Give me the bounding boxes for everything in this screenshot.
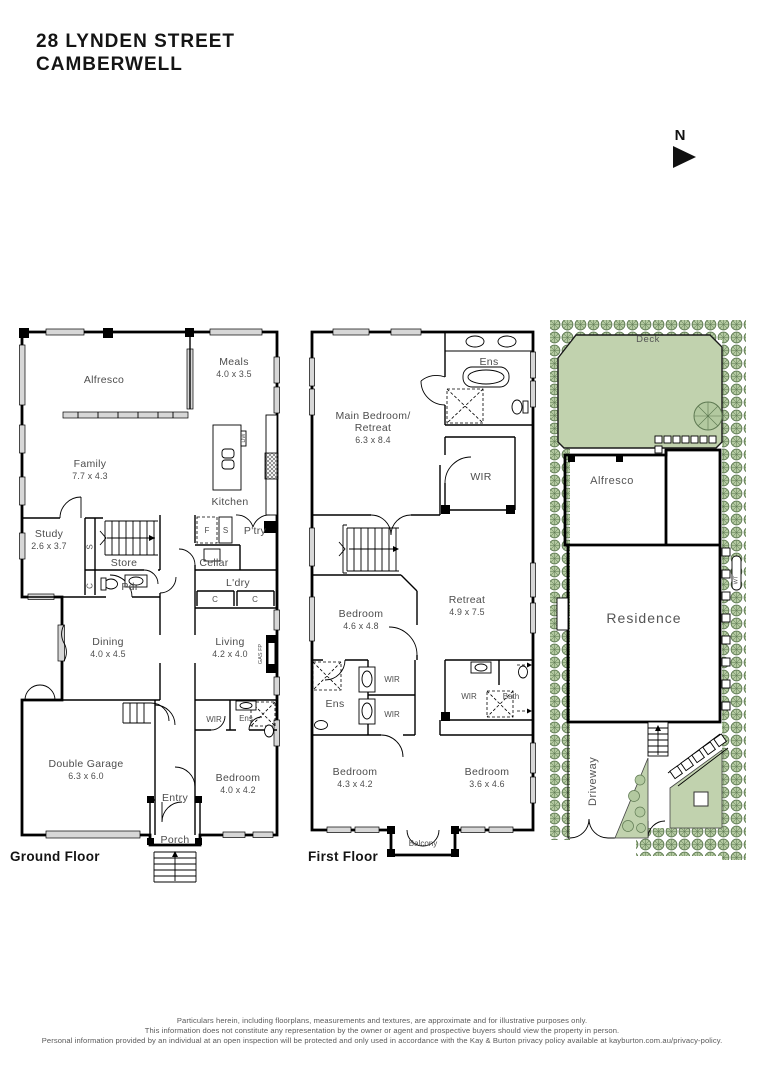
residence-label: Residence — [606, 610, 681, 626]
water-tank-label: WT — [734, 575, 740, 584]
main-bed-doors — [371, 515, 411, 535]
bedroom23-walls — [312, 720, 533, 735]
site-plan: Deck Alfresco Residence — [548, 318, 754, 870]
wir3-label: WIR — [461, 692, 477, 701]
powder-label: Pdr — [121, 581, 138, 593]
ground-stairs — [100, 521, 158, 555]
wir-label: WIR — [206, 715, 222, 724]
kitchen-label: Kitchen — [211, 496, 248, 508]
bedroom-label: Bedroom — [216, 772, 261, 784]
garage-label: Double Garage — [48, 758, 123, 770]
bedroom3-label: Bedroom — [465, 766, 510, 778]
feature-tree-icon — [694, 402, 722, 430]
study-label: Study — [35, 528, 64, 540]
porch-steps — [154, 851, 196, 882]
fridge-label: F — [205, 526, 210, 535]
site-alfresco-label: Alfresco — [590, 475, 634, 487]
ground-floor-title: Ground Floor — [10, 849, 100, 864]
north-arrow-icon — [673, 146, 696, 168]
driveway-label: Driveway — [587, 757, 599, 806]
cellar-label: Cellar — [199, 557, 228, 569]
retreat-dim: 4.9 x 7.5 — [449, 607, 485, 617]
alfresco-label: Alfresco — [84, 374, 124, 386]
disclaimer-line1: Particulars herein, including floorplans… — [0, 1016, 764, 1026]
wir-bath-block — [445, 660, 533, 720]
bedroom2-label: Bedroom — [333, 766, 378, 778]
property-title-line2: CAMBERWELL — [36, 53, 235, 76]
laundry-label: L'dry — [226, 577, 250, 589]
meals-label: Meals — [219, 356, 249, 368]
cooktop-icon — [265, 453, 278, 479]
ens-label: Ens — [239, 714, 253, 723]
first-floor-plan: Main Bedroom/ Retreat 6.3 x 8.4 Ens WIR … — [303, 325, 543, 895]
wir2-label: WIR — [384, 710, 400, 719]
north-compass: N — [666, 124, 704, 172]
residence-inner-wall — [565, 450, 720, 545]
closet-s-label: S — [86, 544, 95, 549]
pantry-label: P'try — [244, 525, 267, 537]
property-title-line1: 28 LYNDEN STREET — [36, 30, 235, 53]
bedroom2-door — [381, 735, 403, 757]
ens2-label: Ens — [326, 698, 345, 710]
dining-dim: 4.0 x 4.5 — [90, 649, 126, 659]
first-corner-posts — [387, 505, 515, 857]
deck-label: Deck — [636, 334, 660, 345]
retreat-label: Retreat — [449, 594, 486, 606]
front-steps — [648, 722, 668, 756]
wir1-label: WIR — [384, 675, 400, 684]
main-wir-label: WIR — [470, 471, 491, 483]
entry-label: Entry — [162, 792, 188, 804]
garden-wedge — [615, 758, 648, 838]
bedroom3-dim: 3.6 x 4.6 — [469, 779, 505, 789]
living-dim: 4.2 x 4.0 — [212, 649, 248, 659]
main-bed-wall — [312, 465, 440, 515]
disclaimer-line2: This information does not constitute any… — [0, 1026, 764, 1036]
first-stairs — [339, 525, 399, 573]
study-dim: 2.6 x 3.7 — [31, 541, 67, 551]
family-label: Family — [74, 458, 107, 470]
dishwasher-label: DW — [241, 433, 247, 443]
cupboard2-label: C — [252, 595, 258, 604]
disclaimer: Particulars herein, including floorplans… — [0, 1016, 764, 1046]
disclaimer-line3: Personal information provided by an indi… — [0, 1036, 764, 1046]
ground-floor-plan: GAS FP Alfresco Meals 4.0 x 3.5 Family 7… — [8, 325, 300, 895]
main-bedroom-dim: 6.3 x 8.4 — [355, 435, 391, 445]
bedroom2-dim: 4.3 x 4.2 — [337, 779, 373, 789]
family-dim: 7.7 x 4.3 — [72, 471, 108, 481]
residence-outline — [565, 450, 720, 722]
garage-steps — [123, 703, 151, 723]
dining-label: Dining — [92, 636, 124, 648]
property-title: 28 LYNDEN STREET CAMBERWELL — [36, 30, 235, 76]
cupboard1-label: C — [212, 595, 218, 604]
main-bedroom-label1: Main Bedroom/ — [335, 410, 410, 422]
balcony-label: Balcony — [409, 839, 437, 848]
garage-step-door — [151, 703, 169, 721]
first-windows — [310, 329, 536, 833]
first-floor-title: First Floor — [308, 849, 378, 864]
ens2-fixtures — [313, 662, 375, 730]
garage-dim: 6.3 x 6.0 — [68, 771, 104, 781]
main-bedroom-label2: Retreat — [355, 422, 392, 434]
north-label: N — [675, 127, 686, 144]
closet-c-label: C — [86, 583, 95, 589]
gas-fp-label: GAS FP — [258, 644, 264, 665]
gas-fireplace — [266, 635, 277, 673]
bedroom1-dim: 4.6 x 4.8 — [343, 621, 379, 631]
porch-label: Porch — [161, 834, 190, 846]
living-label: Living — [215, 636, 244, 648]
store-label: Store — [111, 557, 138, 569]
floorplan-page: 28 LYNDEN STREET CAMBERWELL N — [0, 0, 764, 1080]
rear-lawn — [558, 335, 722, 448]
bedroom1-label: Bedroom — [339, 608, 384, 620]
main-ens — [421, 332, 533, 425]
main-ens-label: Ens — [480, 356, 499, 368]
sink-label: S — [223, 526, 228, 535]
meals-dim: 4.0 x 3.5 — [216, 369, 252, 379]
residence-bay-window — [557, 598, 568, 630]
bath-label: Bath — [503, 692, 519, 701]
bedroom-dim: 4.0 x 4.2 — [220, 785, 256, 795]
